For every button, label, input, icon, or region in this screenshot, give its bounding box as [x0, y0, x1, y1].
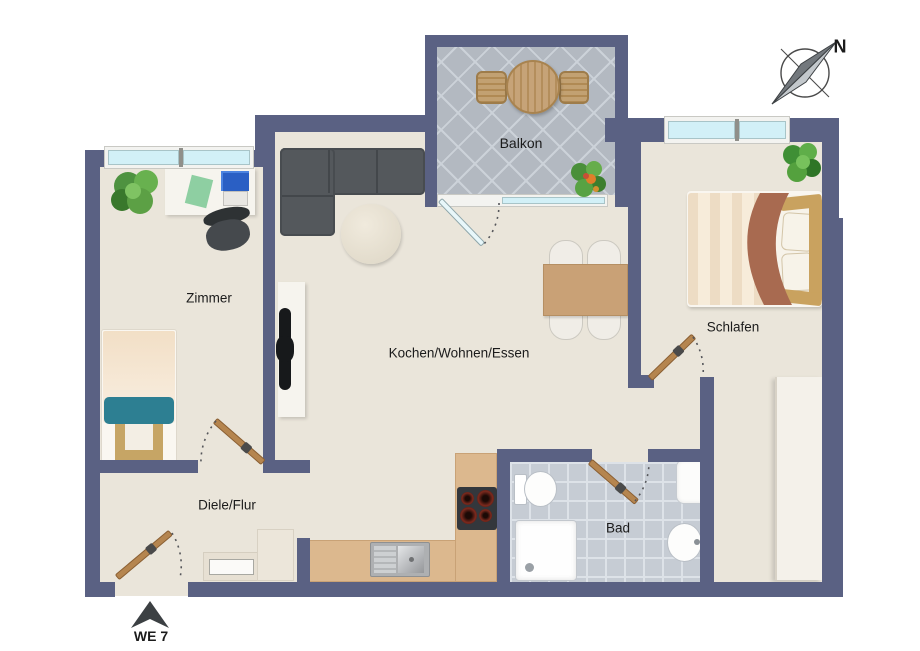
wall-dining-bedroom: [628, 133, 641, 388]
sofa-seam-2: [376, 150, 378, 193]
balcony-table: [506, 60, 560, 114]
burner-1: [461, 492, 474, 505]
burner-4: [479, 509, 492, 522]
wall-bottom-left: [85, 582, 115, 597]
wall-balcony-left: [425, 35, 437, 207]
schlafen-window-divider: [735, 119, 739, 141]
burner-3: [460, 507, 477, 524]
wall-kitchen-stub: [297, 538, 310, 583]
balcony-chair-left: [476, 71, 507, 104]
schlafen-window-glass-1: [668, 121, 735, 139]
sofa-side-section: [280, 148, 335, 236]
wall-bath-top-right: [648, 449, 714, 462]
coffee-table: [341, 204, 401, 264]
entrance-arrow: [131, 601, 169, 628]
zimmer-window-glass-1: [108, 150, 179, 165]
balcony-chair-right: [559, 71, 589, 104]
headboard-side: [809, 198, 822, 302]
wall-bath-left: [497, 449, 510, 582]
wall-bedroom-bath: [700, 377, 714, 582]
label-zimmer: Zimmer: [186, 291, 232, 306]
wall-bath-top-left: [497, 449, 592, 462]
floor-plan: Balkon Zimmer Kochen/Wohnen/Essen Schlaf…: [0, 0, 920, 651]
sofa-seam-1: [328, 150, 330, 193]
balcony-window-glass: [502, 197, 605, 204]
shower: [515, 520, 577, 581]
wall-zimmer-diele: [85, 460, 198, 473]
shower-drain: [525, 563, 534, 572]
wall-balcony-top: [425, 35, 628, 47]
schlafen-window-glass-2: [739, 121, 786, 139]
label-north: N: [834, 37, 847, 58]
label-balkon: Balkon: [500, 135, 543, 151]
wall-zimmer-living: [263, 132, 275, 473]
floor-entrance-threshold: [115, 582, 188, 596]
compass: [772, 42, 836, 104]
label-kochen-wohnen-essen: Kochen/Wohnen/Essen: [389, 346, 530, 361]
label-bad: Bad: [606, 521, 630, 536]
label-schlafen: Schlafen: [707, 320, 760, 335]
wall-right-lower: [822, 218, 843, 597]
hall-sideboard-tall: [257, 529, 294, 581]
wall-left: [85, 150, 100, 597]
single-bed-teal-blanket: [104, 397, 174, 424]
laptop-screen: [221, 171, 249, 191]
laptop-keyboard: [223, 191, 248, 206]
label-diele-flur: Diele/Flur: [198, 498, 256, 513]
sofa-seam-3: [282, 195, 333, 197]
sink-drain-dot: [409, 557, 414, 562]
dining-table: [543, 264, 628, 316]
wall-bottom-main: [188, 582, 843, 597]
zimmer-window-glass-2: [183, 150, 250, 165]
burner-2: [477, 490, 494, 507]
compass-needle-dark: [772, 42, 836, 104]
wall-right-upper: [822, 118, 839, 218]
toilet-bowl: [524, 471, 557, 507]
compass-needle-light: [772, 42, 836, 104]
wardrobe: [775, 377, 822, 580]
tv-mount: [276, 336, 294, 362]
sink-drainer: [374, 546, 396, 573]
wall-living-top: [255, 115, 437, 132]
label-unit-we7: WE 7: [134, 628, 168, 644]
hall-sideboard-inset: [209, 559, 254, 575]
single-bed-footboard: [115, 424, 163, 460]
zimmer-window-divider: [179, 148, 183, 167]
double-bed-blanket: [688, 193, 788, 305]
wall-diele-stub: [263, 460, 310, 473]
